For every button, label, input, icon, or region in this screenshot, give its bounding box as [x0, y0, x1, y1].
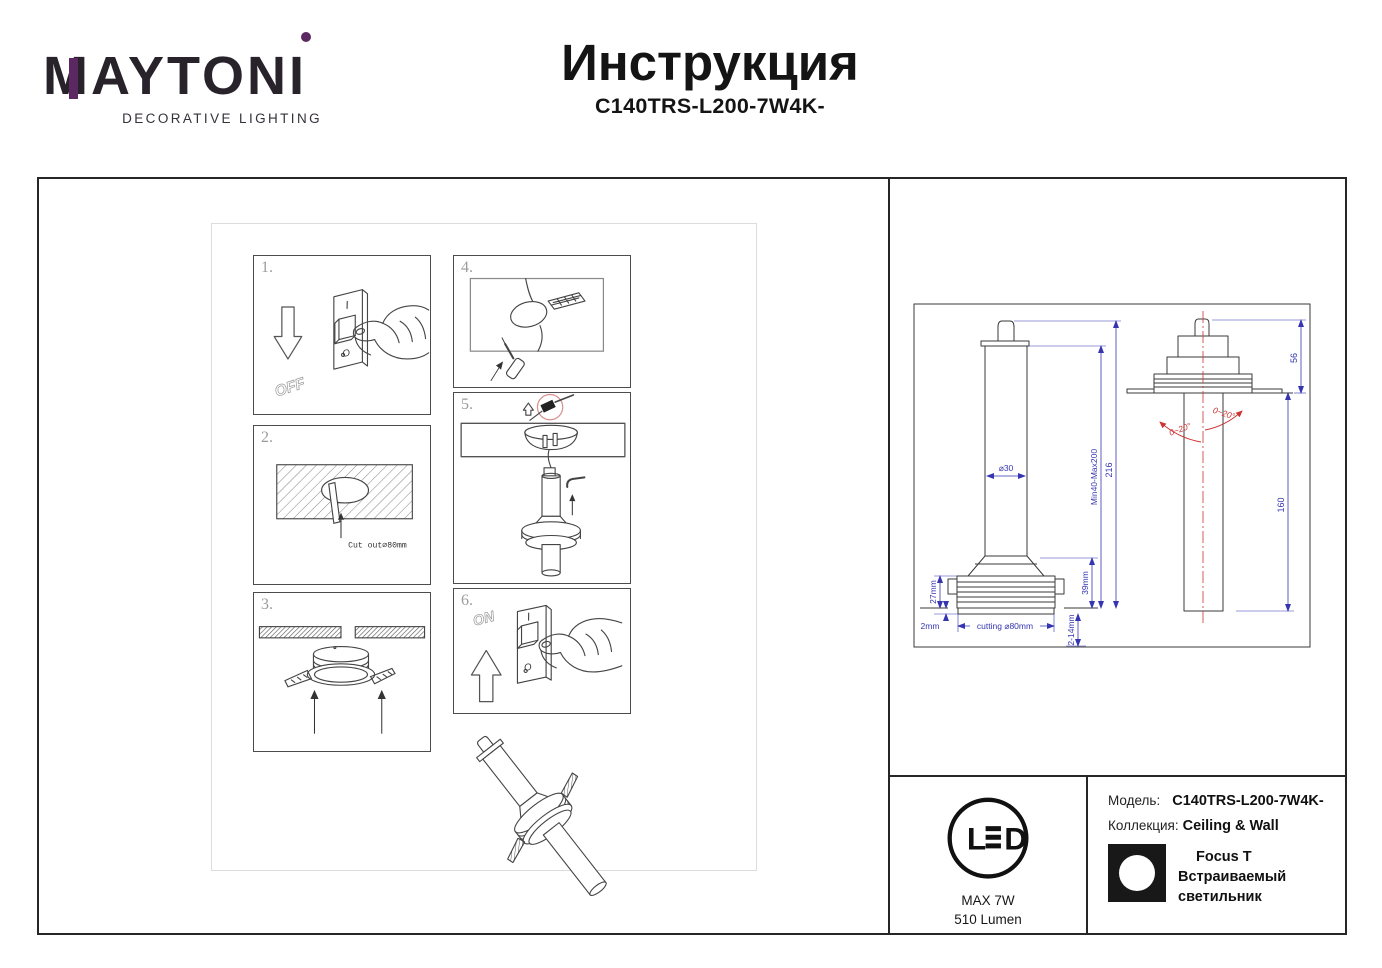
off-label: OFF [273, 375, 308, 401]
canopy-body [508, 298, 550, 331]
title-block: Инструкция C140TRS-L200-7W4K- [510, 36, 910, 119]
step-4-illustration [454, 256, 630, 387]
step-number: 2. [261, 429, 273, 447]
family-row: Focus T Встраиваемый светильник [1108, 844, 1345, 907]
dim-27mm: 27mm [928, 580, 938, 604]
step-number: 3. [261, 596, 273, 614]
wire-connector [540, 400, 555, 413]
down-arrow-icon [274, 307, 302, 359]
main-frame: 1. OFF I O [37, 177, 1347, 935]
ceiling-bar-left [259, 627, 341, 638]
family-name: Focus T [1178, 847, 1345, 867]
product-line-art [460, 722, 625, 907]
step-4-connect-wires: 4. [453, 255, 631, 388]
cutout-note: Cut out⌀80mm [348, 541, 407, 550]
switch [517, 605, 551, 683]
product-info-cell: Модель: C140TRS-L200-7W4K- Коллекция: Ce… [1088, 777, 1345, 933]
model-value: C140TRS-L200-7W4K- [1172, 793, 1324, 809]
cutout-hole [322, 477, 369, 502]
collection-label: Коллекция: [1108, 818, 1179, 833]
small-up-arrow [523, 403, 533, 415]
model-number-title: C140TRS-L200-7W4K- [510, 94, 910, 119]
dim-56: 56 [1289, 353, 1299, 363]
brand-tagline: DECORATIVE LIGHTING [43, 111, 322, 126]
mounted-dimension-labels: 56 160 [1276, 353, 1299, 513]
step-2-cut-hole: 2. Cut out⌀80mm [253, 425, 431, 585]
step-6-illustration: ON I O [454, 589, 630, 713]
brand-logo: MAYTONI DECORATIVE LIGHTING [43, 49, 322, 126]
page-title: Инструкция [510, 36, 910, 90]
lamp-body [522, 468, 581, 576]
led-letter-d: D [1004, 821, 1027, 857]
family-text: Focus T Встраиваемый светильник [1178, 844, 1345, 907]
led-spec-cell: L D MAX 7W 510 Lumen [890, 777, 1088, 933]
screwdriver [502, 338, 525, 380]
product-type: Встраиваемый светильник [1178, 867, 1345, 907]
led-letter-l: L [967, 821, 986, 857]
step-1-illustration: OFF I O [254, 256, 430, 414]
step-5-illustration [454, 393, 630, 583]
mounted-section [1127, 319, 1293, 611]
step-5-attach-lamp: 5. [453, 392, 631, 584]
hand-sketch [353, 306, 428, 359]
collection-value: Ceiling & Wall [1183, 818, 1279, 834]
hex-key [567, 477, 584, 487]
mounting-ring [285, 647, 395, 687]
up-arrow-icon [471, 650, 501, 701]
dimension-drawing: ⌀30 27mm 2mm cutting ⌀80mm 39mm 2-14mm M… [890, 179, 1345, 775]
dim-diameter: ⌀30 [999, 463, 1014, 473]
dim-cutting: cutting ⌀80mm [977, 621, 1033, 631]
step-1-power-off: 1. OFF I O [253, 255, 431, 415]
downlight-icon-circle [1119, 855, 1155, 891]
brand-accent-dot [301, 32, 311, 42]
dim-39mm: 39mm [1080, 571, 1090, 595]
spec-info-row: L D MAX 7W 510 Lumen Модель: C140TRS-L20… [890, 775, 1345, 933]
led-logo-icon: L D [942, 795, 1034, 887]
step-number: 6. [461, 592, 473, 610]
collection-row: Коллекция: Ceiling & Wall [1108, 818, 1345, 834]
model-label: Модель: [1108, 793, 1160, 808]
max-power: MAX 7W [961, 893, 1014, 908]
step-2-illustration: Cut out⌀80mm [254, 426, 430, 584]
dim-160: 160 [1276, 497, 1286, 512]
step-number: 5. [461, 396, 473, 414]
assembled-product-sketch [460, 722, 625, 907]
dim-2-14mm: 2-14mm [1066, 614, 1076, 645]
step-3-illustration [254, 593, 430, 751]
model-row: Модель: C140TRS-L200-7W4K- [1108, 793, 1345, 809]
dim-min-max: Min40-Max200 [1089, 449, 1099, 505]
canopy [525, 425, 578, 449]
installation-steps-pane: 1. OFF I O [39, 179, 890, 933]
dimension-drawing-svg: ⌀30 27mm 2mm cutting ⌀80mm 39mm 2-14mm M… [890, 179, 1345, 775]
step-6-power-on: 6. ON I O [453, 588, 631, 714]
dim-2mm: 2mm [921, 621, 940, 631]
dim-total: 216 [1104, 462, 1114, 477]
downlight-icon [1108, 844, 1166, 902]
ceiling-bar-right [355, 627, 424, 638]
brand-accent-bar [69, 58, 78, 99]
push-arrows [310, 690, 385, 734]
on-label: ON [471, 609, 497, 630]
technical-pane: ⌀30 27mm 2mm cutting ⌀80mm 39mm 2-14mm M… [890, 179, 1345, 933]
luminous-flux: 510 Lumen [954, 912, 1022, 927]
step-number: 4. [461, 259, 473, 277]
step-3-insert-ring: 3. [253, 592, 431, 752]
step-number: 1. [261, 259, 273, 277]
brand-name: MAYTONI [43, 49, 322, 103]
